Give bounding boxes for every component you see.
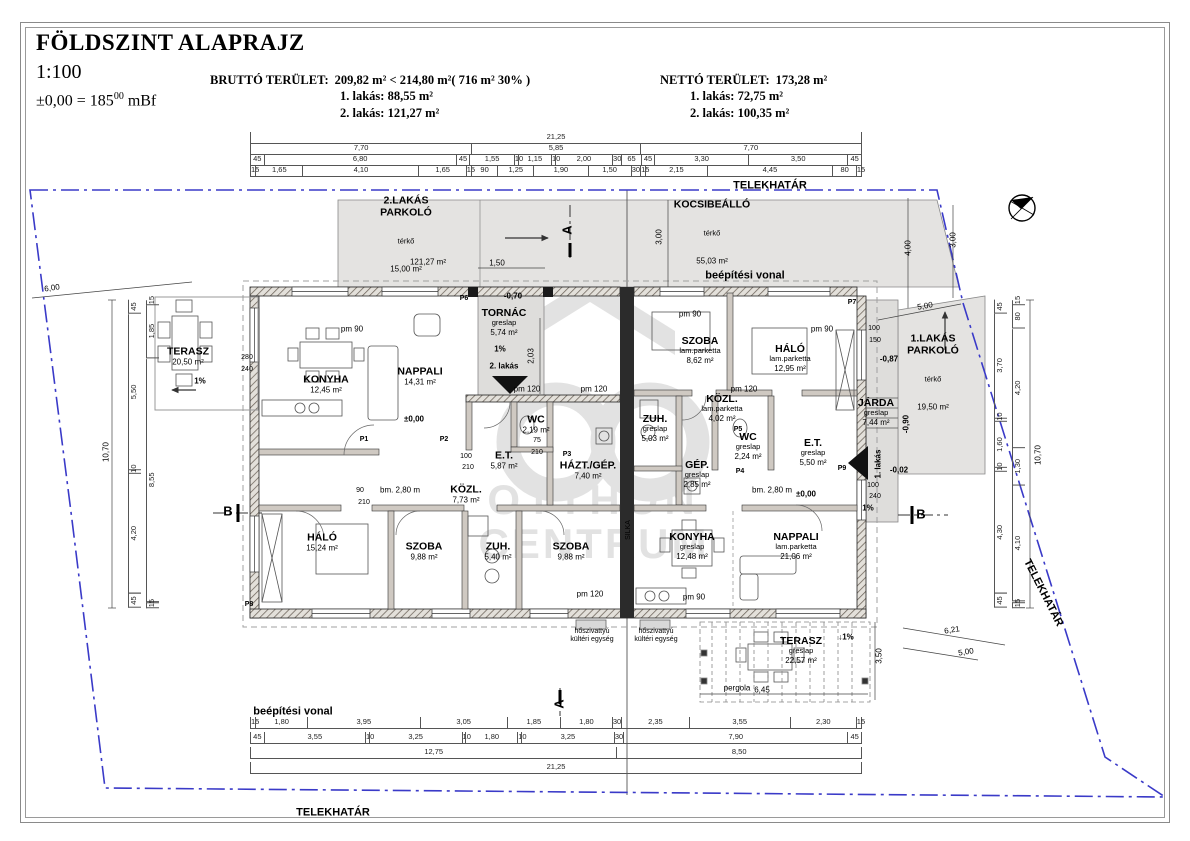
annotation-label: ±0,00 <box>404 414 424 423</box>
room-area: 5,87 m² <box>490 461 517 470</box>
annotation-label: 90 <box>356 487 364 495</box>
room-name: KÖZL. <box>450 483 482 495</box>
annotation-label: 75 <box>533 437 541 445</box>
room-label: E.T. greslap 5,50 m² <box>799 437 826 467</box>
dim-chain-bottom-2: 453,55103,25101,80103,25307,9045 <box>250 733 862 744</box>
dim-chain-bottom-4: 21,25 <box>250 763 862 774</box>
outdoor-area-label: 1.LAKÁS PARKOLÓ térkő 19,50 m² <box>907 314 959 430</box>
room-name: SZOBA <box>553 540 590 552</box>
annotation-label: 1. lakás <box>873 450 882 479</box>
room-area: 7,73 m² <box>450 495 482 504</box>
room-label: HÁLÓ lam.parketta 12,95 m² <box>769 343 810 373</box>
site-label: TELEKHATÁR <box>733 180 807 193</box>
room-label: ZUH. greslap 5,03 m² <box>641 413 668 443</box>
room-finish: greslap <box>858 409 894 418</box>
room-label: TERASZ 20,50 m² <box>167 345 209 366</box>
dim-chain-bottom-1: 151,803,953,051,851,80302,353,552,3015 <box>250 718 862 729</box>
annotation-label: P8 <box>245 601 254 609</box>
annotation-label: 240 <box>869 493 881 501</box>
annotation-label: 210 <box>531 449 543 457</box>
annotation-label: 1% <box>494 344 506 353</box>
dim-chain-left-a: 455,50104,2045 <box>128 300 141 608</box>
room-label: TORNÁC greslap 5,74 m² <box>482 307 527 337</box>
room-name: ZUH. <box>484 540 511 552</box>
net-area-block: NETTÓ TERÜLET:173,28 m² 1. lakás: 72,75 … <box>660 72 833 121</box>
annotation-label: A <box>561 225 576 234</box>
annotation-label: pm 90 <box>679 309 701 318</box>
annotation-label: -0,87 <box>880 354 898 363</box>
annotation-label: 3,50 <box>874 648 883 664</box>
party-wall <box>620 287 634 618</box>
room-finish: lam.parketta <box>701 405 742 414</box>
room-label: WC greslap 2,24 m² <box>734 431 761 461</box>
annotation-label: B <box>223 505 232 520</box>
annotation-label: pm 90 <box>811 324 833 333</box>
gross-area-value: 209,82 m² < 214,80 m²( 716 m² 30% ) <box>335 73 530 87</box>
annotation-label: P2 <box>440 436 449 444</box>
annotation-label: P3 <box>563 451 572 459</box>
annotation-label: SILKA <box>625 520 633 540</box>
annotation-label: P5 <box>734 426 743 434</box>
room-area: 7,44 m² <box>858 418 894 427</box>
room-name: HÁZT./GÉP. <box>560 459 616 471</box>
room-area: 12,95 m² <box>769 364 810 373</box>
net-flat-line: 1. lakás: 72,75 m² <box>690 88 833 104</box>
room-label: HÁZT./GÉP. 7,40 m² <box>560 459 616 480</box>
annotation-label: P4 <box>736 468 745 476</box>
annotation-label: 121,27 m² <box>410 257 446 266</box>
room-name: WC <box>522 413 549 425</box>
annotation-label: pm 90 <box>683 592 705 601</box>
room-area: 5,03 m² <box>641 434 668 443</box>
room-area: 22,57 m² <box>780 656 822 665</box>
annotation-label: pergola <box>724 683 751 692</box>
outdoor-area-name: 2.LAKÁS PARKOLÓ <box>380 195 432 219</box>
annotation-label: 100 <box>460 453 472 461</box>
room-label: SZOBA 9,88 m² <box>553 540 590 561</box>
room-finish: greslap <box>734 443 761 452</box>
annotation-label: bm. 2,80 m <box>752 485 792 494</box>
annotation-label: P9 <box>838 465 847 473</box>
annotation-label: B <box>916 508 925 523</box>
annotation-label: pm 120 <box>581 384 608 393</box>
room-label: KÖZL. 7,73 m² <box>450 483 482 504</box>
room-area: 20,50 m² <box>167 357 209 366</box>
room-finish: lam.parketta <box>769 355 810 364</box>
room-label: GÉP. greslap 2,85 m² <box>683 459 710 489</box>
annotation-label: -0,70 <box>504 291 522 300</box>
annotation-label: pm 120 <box>731 384 758 393</box>
annotation-label: 210 <box>462 464 474 472</box>
room-area: 12,48 m² <box>669 552 715 561</box>
room-area: 7,40 m² <box>560 471 616 480</box>
annotation-label: 210 <box>358 499 370 507</box>
annotation-label: hőszivattyú kültéri egység <box>634 628 677 644</box>
annotation-label: 150 <box>869 337 881 345</box>
annotation-label: 3,00 <box>948 232 957 248</box>
room-area: 12,45 m² <box>303 385 349 394</box>
outdoor-area-label: KOCSIBEÁLLÓ térkő 55,03 m² <box>674 180 750 283</box>
annotation-label: pm 120 <box>577 589 604 598</box>
annotation-label: 10,70 <box>1033 445 1042 465</box>
annotation-label: 6,45 <box>754 685 770 694</box>
room-label: WC 2,19 m² <box>522 413 549 434</box>
dim-chain-top-4: 151,654,101,6515901,251,901,5030152,154,… <box>250 166 862 177</box>
annotation-label: ↓1% <box>838 632 854 641</box>
dim-chain-left-b: 151,858,5515 <box>146 300 159 608</box>
room-area: 5,74 m² <box>482 328 527 337</box>
annotation-label: 4,00 <box>903 240 912 256</box>
outdoor-area-finish: térkő <box>674 229 750 238</box>
annotation-label: P1 <box>360 436 369 444</box>
room-name: KONYHA <box>303 373 349 385</box>
annotation-label: 1% <box>194 376 206 385</box>
site-label: TELEKHATÁR <box>296 807 370 820</box>
outdoor-area-name: 1.LAKÁS PARKOLÓ <box>907 333 959 357</box>
outdoor-area-name: KOCSIBEÁLLÓ <box>674 199 750 211</box>
north-arrow-icon <box>1009 195 1035 221</box>
gross-flat-line: 1. lakás: 88,55 m² <box>340 88 536 104</box>
room-finish: greslap <box>780 647 822 656</box>
room-label: KONYHA greslap 12,48 m² <box>669 531 715 561</box>
floorplan-page: OTTHON CENTRUM <box>0 0 1190 841</box>
room-label: NAPPALI lam.parketta 21,06 m² <box>773 531 818 561</box>
room-area: 2,19 m² <box>522 425 549 434</box>
site-label: beépítési vonal <box>705 270 784 283</box>
room-area: 14,31 m² <box>397 377 442 386</box>
annotation-label: pm 90 <box>341 324 363 333</box>
room-area: 5,40 m² <box>484 552 511 561</box>
outdoor-area-finish: térkő <box>380 237 432 246</box>
annotation-label: 100 <box>868 325 880 333</box>
annotation-label: 100 <box>867 482 879 490</box>
room-name: SZOBA <box>406 540 443 552</box>
net-flat-line: 2. lakás: 100,35 m² <box>690 105 833 121</box>
outdoor-area-label: 2.LAKÁS PARKOLÓ térkő 15,00 m² <box>380 176 432 292</box>
annotation-label: 2,03 <box>526 348 535 364</box>
gross-area-flats: 1. lakás: 88,55 m²2. lakás: 121,27 m² <box>340 88 536 121</box>
annotation-label: 1,50 <box>489 258 505 267</box>
annotation-label: 240 <box>241 366 253 374</box>
room-area: 5,50 m² <box>799 458 826 467</box>
annotation-label: 10,70 <box>101 442 110 462</box>
room-label: TERASZ greslap 22,57 m² <box>780 635 822 665</box>
room-area: 9,88 m² <box>406 552 443 561</box>
annotation-label: P7 <box>848 299 857 307</box>
net-area-flats: 1. lakás: 72,75 m²2. lakás: 100,35 m² <box>690 88 833 121</box>
room-label: SZOBA 9,88 m² <box>406 540 443 561</box>
annotation-label: hőszivattyú kültéri egység <box>570 628 613 644</box>
room-finish: greslap <box>683 471 710 480</box>
gross-area-label: BRUTTÓ TERÜLET: <box>210 73 329 87</box>
room-area: 2,85 m² <box>683 480 710 489</box>
room-label: HÁLÓ 15,24 m² <box>306 531 338 552</box>
annotation-label: -0,90 <box>901 415 910 433</box>
outdoor-area-size: 19,50 m² <box>907 402 959 411</box>
annotation-label: pm 120 <box>514 384 541 393</box>
room-finish: lam.parketta <box>773 543 818 552</box>
outdoor-area-finish: térkő <box>907 375 959 384</box>
room-finish: greslap <box>799 449 826 458</box>
net-area-value: 173,28 m² <box>776 73 828 87</box>
room-label: JÁRDA greslap 7,44 m² <box>858 397 894 427</box>
annotation-label: bm. 2,80 m <box>380 485 420 494</box>
net-area-label: NETTÓ TERÜLET: <box>660 73 770 87</box>
outdoor-area-size: 55,03 m² <box>674 256 750 265</box>
annotation-label: P6 <box>460 295 469 303</box>
room-area: 2,24 m² <box>734 452 761 461</box>
room-label: ZUH. 5,40 m² <box>484 540 511 561</box>
room-label: KÖZL. lam.parketta 4,02 m² <box>701 393 742 423</box>
dim-chain-right-in: 453,70101,60104,3045 <box>994 300 1007 608</box>
room-label: E.T. 5,87 m² <box>490 449 517 470</box>
room-finish: greslap <box>641 425 668 434</box>
room-area: 4,02 m² <box>701 414 742 423</box>
annotation-label: 1% <box>862 503 874 512</box>
annotation-label: 2. lakás <box>490 361 519 370</box>
room-label: SZOBA lam.parketta 8,62 m² <box>679 335 720 365</box>
room-finish: greslap <box>669 543 715 552</box>
room-label: KONYHA 12,45 m² <box>303 373 349 394</box>
annotation-label: 280 <box>241 354 253 362</box>
annotation-label: 3,00 <box>654 229 663 245</box>
room-area: 9,88 m² <box>553 552 590 561</box>
gross-flat-line: 2. lakás: 121,27 m² <box>340 105 536 121</box>
room-label: NAPPALI 14,31 m² <box>397 365 442 386</box>
room-name: TERASZ <box>167 345 209 357</box>
room-finish: lam.parketta <box>679 347 720 356</box>
room-name: E.T. <box>490 449 517 461</box>
dim-chain-bottom-3: 12,758,50 <box>250 748 862 759</box>
gross-area-block: BRUTTÓ TERÜLET:209,82 m² < 214,80 m²( 71… <box>210 72 536 121</box>
annotation-label: ±0,00 <box>796 489 816 498</box>
room-finish: greslap <box>482 319 527 328</box>
annotation-label: -0,02 <box>890 465 908 474</box>
room-name: HÁLÓ <box>306 531 338 543</box>
room-area: 21,06 m² <box>773 552 818 561</box>
site-label: beépítési vonal <box>253 706 332 719</box>
room-name: NAPPALI <box>397 365 442 377</box>
plan-title: FÖLDSZINT ALAPRAJZ <box>36 30 305 56</box>
room-area: 8,62 m² <box>679 356 720 365</box>
annotation-label: A <box>553 699 568 708</box>
room-area: 15,24 m² <box>306 543 338 552</box>
